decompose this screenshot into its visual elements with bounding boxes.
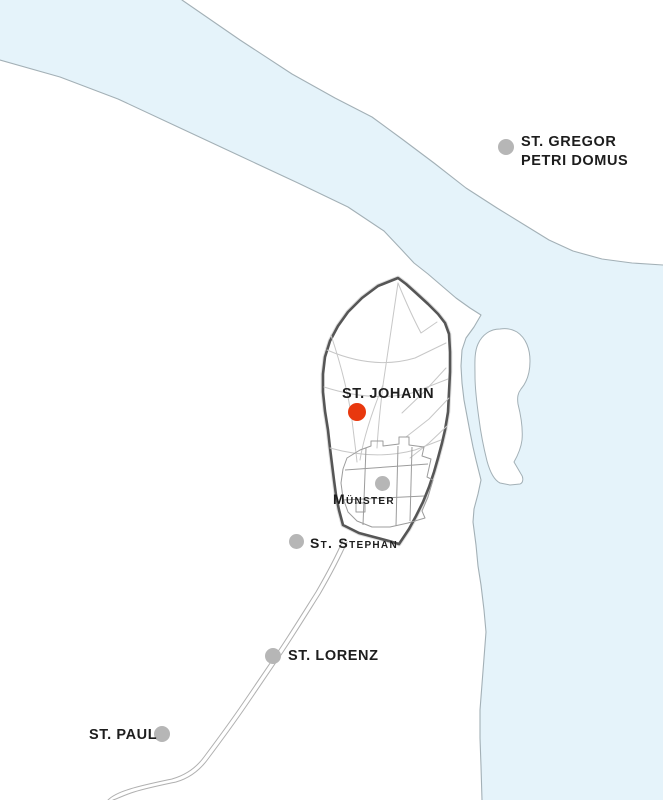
map-label-line: Münster <box>333 491 395 507</box>
map-label-line: ST. GREGOR <box>521 133 628 152</box>
map-canvas: ST. GREGORPETRI DOMUSST. JOHANNMünsterSt… <box>0 0 663 800</box>
marker-dot-muenster <box>375 476 390 491</box>
marker-dot-st-lorenz <box>265 648 281 664</box>
map-label-line: ST. JOHANN <box>342 385 434 404</box>
map-label-line: ST. PAUL <box>89 726 157 745</box>
marker-dot-st-gregor <box>498 139 514 155</box>
map-label-muenster: Münster <box>333 491 395 507</box>
marker-dot-st-stephan <box>289 534 304 549</box>
map-label-st-lorenz: ST. LORENZ <box>288 647 379 666</box>
map-label-line: St. Stephan <box>310 535 398 551</box>
map-label-st-stephan: St. Stephan <box>310 535 398 551</box>
map-label-st-gregor: ST. GREGORPETRI DOMUS <box>521 133 628 171</box>
country-road <box>108 540 347 800</box>
map-label-st-paul: ST. PAUL <box>89 726 157 745</box>
map-label-line: PETRI DOMUS <box>521 152 628 171</box>
map-label-line: ST. LORENZ <box>288 647 379 666</box>
map-svg <box>0 0 663 800</box>
map-label-st-johann: ST. JOHANN <box>342 385 434 404</box>
marker-dot-st-johann <box>348 403 366 421</box>
